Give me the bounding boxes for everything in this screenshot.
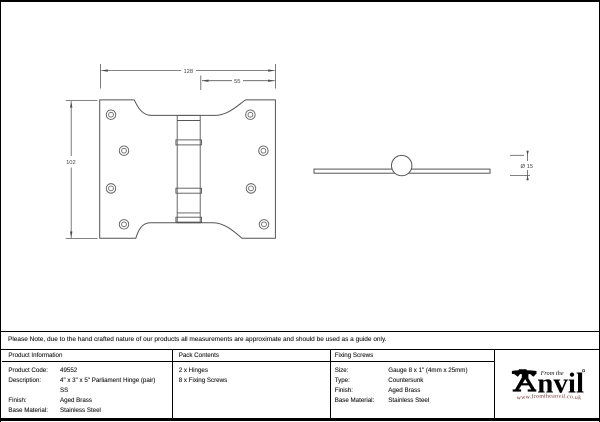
svg-text:From the: From the	[540, 371, 564, 377]
svg-text:102: 102	[66, 160, 76, 166]
svg-text:55: 55	[234, 79, 240, 85]
svg-text:Ø 15: Ø 15	[521, 164, 534, 170]
svg-text:128: 128	[183, 69, 193, 75]
